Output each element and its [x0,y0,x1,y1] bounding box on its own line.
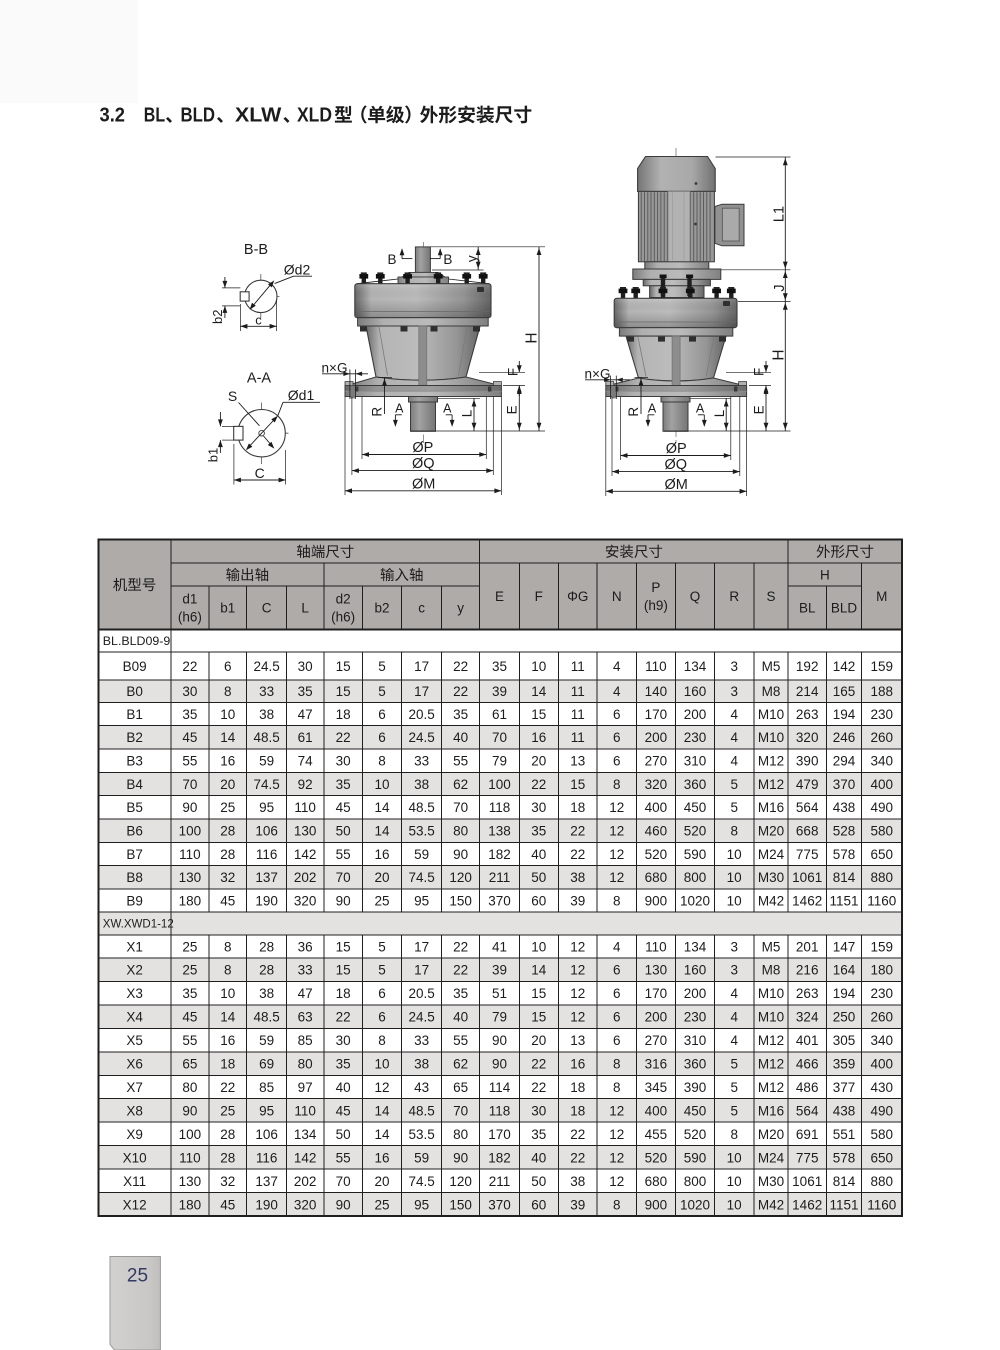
svg-text:4: 4 [730,707,738,722]
svg-text:74.5: 74.5 [408,1174,434,1189]
svg-text:d1: d1 [182,592,197,607]
svg-text:120: 120 [449,870,472,885]
svg-text:M12: M12 [758,1033,784,1048]
svg-text:16: 16 [220,1033,235,1048]
svg-text:250: 250 [833,1009,856,1024]
svg-text:18: 18 [336,707,351,722]
svg-text:4: 4 [730,730,738,745]
svg-text:95: 95 [259,800,274,815]
svg-text:28: 28 [220,847,235,862]
svg-text:B09: B09 [123,659,147,674]
svg-text:1061: 1061 [792,1174,822,1189]
svg-text:22: 22 [570,1127,585,1142]
svg-text:X6: X6 [126,1056,143,1071]
svg-text:X3: X3 [126,986,143,1001]
svg-text:165: 165 [833,684,856,699]
svg-text:90: 90 [336,1197,351,1212]
svg-text:74.5: 74.5 [408,870,434,885]
svg-text:14: 14 [374,800,390,815]
svg-text:S: S [766,589,775,604]
svg-text:15: 15 [336,939,351,954]
svg-text:800: 800 [684,1174,707,1189]
svg-text:8: 8 [613,777,621,792]
svg-text:4: 4 [730,1009,738,1024]
svg-text:18: 18 [220,1056,235,1071]
svg-text:182: 182 [488,847,511,862]
svg-text:28: 28 [259,939,274,954]
svg-text:60: 60 [531,1197,546,1212]
svg-text:110: 110 [179,1150,201,1165]
svg-text:190: 190 [255,893,278,908]
svg-text:M8: M8 [762,962,781,977]
svg-text:32: 32 [220,1174,235,1189]
svg-text:580: 580 [871,1127,894,1142]
svg-text:35: 35 [453,707,468,722]
svg-text:95: 95 [414,1197,429,1212]
svg-text:15: 15 [336,962,351,977]
svg-text:6: 6 [224,659,232,674]
svg-text:214: 214 [796,684,819,699]
svg-text:5: 5 [730,777,738,792]
svg-text:35: 35 [531,824,546,839]
svg-text:8: 8 [613,1056,621,1071]
svg-text:16: 16 [220,754,235,769]
svg-text:5: 5 [730,1103,738,1118]
svg-text:53.5: 53.5 [408,824,434,839]
svg-text:10: 10 [531,659,546,674]
svg-text:230: 230 [684,1009,707,1024]
svg-text:180: 180 [179,1197,202,1212]
svg-text:38: 38 [570,870,585,885]
svg-text:130: 130 [645,962,668,977]
svg-text:F: F [505,368,520,376]
svg-text:M12: M12 [758,1056,784,1071]
svg-text:578: 578 [833,847,856,862]
svg-text:200: 200 [645,1009,668,1024]
svg-text:490: 490 [871,800,894,815]
svg-text:39: 39 [570,1197,585,1212]
svg-text:55: 55 [453,1033,468,1048]
svg-text:110: 110 [294,800,316,815]
svg-text:120: 120 [449,1174,472,1189]
svg-text:230: 230 [871,986,894,1001]
svg-text:190: 190 [255,1197,278,1212]
svg-text:11: 11 [571,730,585,745]
svg-text:4: 4 [730,754,738,769]
svg-text:M24: M24 [758,847,785,862]
svg-text:A: A [648,402,657,416]
svg-text:814: 814 [833,1174,856,1189]
svg-text:8: 8 [224,962,232,977]
svg-text:1151: 1151 [829,893,858,908]
svg-text:216: 216 [796,962,819,977]
svg-text:85: 85 [259,1080,274,1095]
svg-text:13: 13 [570,1033,585,1048]
svg-text:359: 359 [833,1056,856,1071]
svg-text:30: 30 [531,800,546,815]
svg-text:438: 438 [833,800,856,815]
svg-text:5: 5 [378,684,386,699]
svg-text:M12: M12 [758,754,784,769]
svg-text:B: B [387,252,396,267]
svg-text:B9: B9 [126,893,143,908]
svg-text:138: 138 [488,824,511,839]
svg-text:45: 45 [220,1197,235,1212]
svg-text:15: 15 [336,659,351,674]
svg-text:90: 90 [182,800,197,815]
svg-text:H: H [771,349,788,360]
svg-text:201: 201 [796,939,819,954]
svg-text:15: 15 [531,986,546,1001]
svg-text:40: 40 [453,730,468,745]
svg-text:159: 159 [871,939,894,954]
svg-text:6: 6 [378,986,386,1001]
svg-text:55: 55 [336,847,351,862]
svg-text:230: 230 [871,707,894,722]
svg-text:3: 3 [730,962,738,977]
svg-text:202: 202 [294,870,317,885]
svg-text:466: 466 [796,1056,819,1071]
svg-text:59: 59 [414,1150,429,1165]
svg-text:B1: B1 [126,707,143,722]
svg-text:F: F [752,368,767,376]
svg-text:22: 22 [531,1080,546,1095]
svg-text:1020: 1020 [680,1197,710,1212]
svg-text:551: 551 [833,1127,856,1142]
svg-text:134: 134 [684,939,707,954]
svg-text:20: 20 [374,1174,389,1189]
svg-text:28: 28 [220,1127,235,1142]
svg-text:12: 12 [609,800,624,815]
svg-text:B8: B8 [126,870,143,885]
svg-text:48.5: 48.5 [253,730,279,745]
svg-text:6: 6 [378,730,386,745]
svg-text:10: 10 [727,1150,742,1165]
svg-text:M20: M20 [758,824,784,839]
svg-text:17: 17 [414,684,429,699]
svg-text:130: 130 [179,1174,202,1189]
svg-text:14: 14 [531,962,547,977]
svg-text:XLD: XLD [297,105,332,127]
svg-text:668: 668 [796,824,819,839]
svg-text:59: 59 [259,754,274,769]
svg-text:22: 22 [570,847,585,862]
svg-text:211: 211 [489,870,511,885]
svg-text:8: 8 [613,1197,621,1212]
svg-text:45: 45 [336,1103,351,1118]
svg-text:22: 22 [336,1009,351,1024]
svg-text:1462: 1462 [792,893,822,908]
svg-text:18: 18 [570,1080,585,1095]
svg-text:6: 6 [613,707,621,722]
svg-text:A: A [696,402,705,416]
svg-text:y: y [457,601,464,616]
svg-text:L1: L1 [772,206,788,222]
svg-text:N: N [612,589,622,604]
svg-text:10: 10 [727,1174,742,1189]
svg-text:159: 159 [871,659,894,674]
svg-text:15: 15 [531,1009,546,1024]
svg-text:97: 97 [298,1080,313,1095]
svg-text:3: 3 [730,684,738,699]
svg-text:114: 114 [489,1080,511,1095]
svg-text:48.5: 48.5 [408,1103,434,1118]
svg-text:33: 33 [414,754,429,769]
svg-text:25: 25 [374,1197,389,1212]
svg-text:55: 55 [182,754,197,769]
svg-text:M30: M30 [758,1174,784,1189]
svg-text:M: M [876,589,887,604]
svg-text:320: 320 [294,1197,317,1212]
svg-text:22: 22 [220,1080,235,1095]
svg-text:53.5: 53.5 [408,1127,434,1142]
svg-text:25: 25 [182,939,197,954]
svg-text:17: 17 [414,659,429,674]
svg-text:14: 14 [220,730,236,745]
svg-text:520: 520 [684,824,707,839]
svg-text:20: 20 [220,777,235,792]
svg-text:R: R [369,407,384,417]
svg-text:E: E [505,405,520,414]
svg-text:340: 340 [871,1033,894,1048]
svg-text:106: 106 [255,1127,278,1142]
svg-text:BL.BLD09-9: BL.BLD09-9 [103,634,171,648]
svg-text:345: 345 [645,1080,668,1095]
svg-text:16: 16 [374,1150,389,1165]
svg-text:170: 170 [645,986,668,1001]
svg-text:M5: M5 [762,659,781,674]
svg-text:150: 150 [449,893,472,908]
svg-text:20.5: 20.5 [408,986,434,1001]
svg-text:5: 5 [730,1056,738,1071]
svg-text:65: 65 [182,1056,197,1071]
svg-text:11: 11 [571,707,585,722]
svg-text:479: 479 [796,777,819,792]
svg-text:28: 28 [259,962,274,977]
svg-text:4: 4 [613,939,621,954]
svg-text:15: 15 [570,777,585,792]
svg-text:61: 61 [492,707,507,722]
svg-text:62: 62 [453,777,468,792]
svg-text:270: 270 [645,1033,668,1048]
svg-text:305: 305 [833,1033,856,1048]
svg-text:18: 18 [570,1103,585,1118]
svg-text:6: 6 [613,754,621,769]
svg-text:70: 70 [336,870,351,885]
svg-text:L: L [301,601,309,616]
svg-text:B7: B7 [126,847,143,862]
svg-text:6: 6 [613,1033,621,1048]
svg-text:59: 59 [259,1033,274,1048]
svg-text:33: 33 [414,1033,429,1048]
svg-text:246: 246 [833,730,856,745]
svg-text:22: 22 [570,824,585,839]
svg-text:M8: M8 [762,684,781,699]
svg-text:M10: M10 [758,730,784,745]
svg-text:20: 20 [531,754,546,769]
svg-text:36: 36 [298,939,313,954]
svg-text:10: 10 [374,1056,389,1071]
svg-text:324: 324 [796,1009,819,1024]
svg-text:160: 160 [684,962,707,977]
svg-text:25: 25 [127,1265,148,1286]
svg-text:320: 320 [796,730,819,745]
svg-text:11: 11 [571,684,585,699]
svg-text:5: 5 [730,1080,738,1095]
svg-text:H: H [820,567,830,582]
svg-text:4: 4 [613,684,621,699]
svg-text:590: 590 [684,847,707,862]
svg-text:202: 202 [294,1174,317,1189]
svg-text:6: 6 [613,730,621,745]
svg-text:X11: X11 [123,1174,146,1189]
svg-text:16: 16 [570,1056,585,1071]
svg-text:90: 90 [492,1056,507,1071]
svg-text:12: 12 [374,1080,389,1095]
svg-text:10: 10 [727,1197,742,1212]
svg-text:1462: 1462 [792,1197,822,1212]
svg-text:(h9): (h9) [644,598,668,613]
svg-text:564: 564 [796,800,819,815]
svg-text:30: 30 [298,659,313,674]
svg-text:260: 260 [871,730,894,745]
svg-text:38: 38 [259,986,274,1001]
svg-text:y: y [465,255,480,262]
svg-text:35: 35 [182,986,197,1001]
svg-text:142: 142 [294,847,317,862]
svg-text:S: S [228,388,237,404]
svg-text:320: 320 [645,777,668,792]
svg-text:38: 38 [414,777,429,792]
svg-text:106: 106 [255,824,278,839]
svg-text:c: c [255,313,262,328]
svg-text:116: 116 [256,1150,278,1165]
svg-text:M5: M5 [762,939,781,954]
svg-text:377: 377 [833,1080,856,1095]
svg-text:3.2: 3.2 [100,105,126,127]
svg-text:A: A [395,402,404,416]
svg-text:48.5: 48.5 [408,800,434,815]
svg-text:B6: B6 [126,824,143,839]
svg-text:12: 12 [609,824,624,839]
svg-text:370: 370 [488,1197,511,1212]
svg-text:80: 80 [453,824,468,839]
svg-text:74: 74 [298,754,314,769]
svg-text:63: 63 [298,1009,313,1024]
svg-text:450: 450 [684,1103,707,1118]
svg-text:12: 12 [609,1103,624,1118]
svg-text:51: 51 [492,986,507,1001]
svg-text:401: 401 [796,1033,819,1048]
svg-text:B: B [443,252,452,267]
svg-text:BLD: BLD [181,105,216,127]
svg-text:b1: b1 [206,448,221,462]
svg-text:45: 45 [182,1009,197,1024]
svg-text:M16: M16 [758,1103,784,1118]
svg-text:316: 316 [645,1056,668,1071]
svg-text:M12: M12 [758,1080,784,1095]
svg-text:70: 70 [492,730,507,745]
svg-text:460: 460 [645,824,668,839]
svg-text:22: 22 [453,684,468,699]
svg-text:41: 41 [492,939,507,954]
svg-text:22: 22 [453,659,468,674]
svg-text:1061: 1061 [792,870,822,885]
svg-text:b2: b2 [374,601,389,616]
svg-text:691: 691 [796,1127,819,1142]
svg-text:360: 360 [684,777,707,792]
svg-text:22: 22 [453,939,468,954]
svg-text:14: 14 [531,684,547,699]
svg-text:55: 55 [336,1150,351,1165]
svg-text:C: C [262,601,272,616]
svg-text:134: 134 [684,659,707,674]
svg-text:400: 400 [645,800,668,815]
svg-text:116: 116 [256,847,278,862]
svg-text:M24: M24 [758,1150,785,1165]
svg-text:450: 450 [684,800,707,815]
svg-text:775: 775 [796,847,819,862]
svg-text:90: 90 [336,893,351,908]
svg-text:70: 70 [453,800,468,815]
svg-text:79: 79 [492,754,507,769]
svg-text:c: c [418,601,425,616]
svg-text:200: 200 [684,707,707,722]
svg-text:6: 6 [613,986,621,1001]
svg-text:22: 22 [336,730,351,745]
svg-text:194: 194 [833,707,856,722]
svg-text:80: 80 [298,1056,313,1071]
svg-text:1160: 1160 [867,893,896,908]
svg-text:35: 35 [298,684,313,699]
svg-text:164: 164 [833,962,856,977]
svg-text:X5: X5 [126,1033,143,1048]
svg-text:60: 60 [531,893,546,908]
svg-text:194: 194 [833,986,856,1001]
svg-text:38: 38 [414,1056,429,1071]
svg-text:3: 3 [730,939,738,954]
svg-text:5: 5 [730,800,738,815]
svg-text:8: 8 [224,939,232,954]
svg-text:R: R [626,407,641,417]
svg-text:11: 11 [571,659,585,674]
svg-text:M20: M20 [758,1127,784,1142]
svg-text:520: 520 [684,1127,707,1142]
svg-text:F: F [535,589,543,604]
svg-text:110: 110 [645,659,667,674]
svg-text:25: 25 [220,800,235,815]
svg-text:118: 118 [489,1103,511,1118]
svg-text:1020: 1020 [680,893,710,908]
svg-text:8: 8 [730,824,738,839]
svg-text:438: 438 [833,1103,856,1118]
svg-text:M16: M16 [758,800,784,815]
svg-text:ØQ: ØQ [412,456,435,472]
svg-text:100: 100 [488,777,511,792]
svg-text:8: 8 [378,1033,386,1048]
svg-text:10: 10 [727,847,742,862]
svg-text:(h6): (h6) [178,610,202,625]
svg-text:92: 92 [298,777,313,792]
svg-text:10: 10 [220,986,235,1001]
svg-text:M10: M10 [758,1009,784,1024]
svg-text:16: 16 [531,730,546,745]
svg-text:X1: X1 [126,939,143,954]
svg-text:18: 18 [570,800,585,815]
svg-text:18: 18 [336,986,351,1001]
svg-text:142: 142 [833,659,856,674]
svg-text:48.5: 48.5 [253,1009,279,1024]
